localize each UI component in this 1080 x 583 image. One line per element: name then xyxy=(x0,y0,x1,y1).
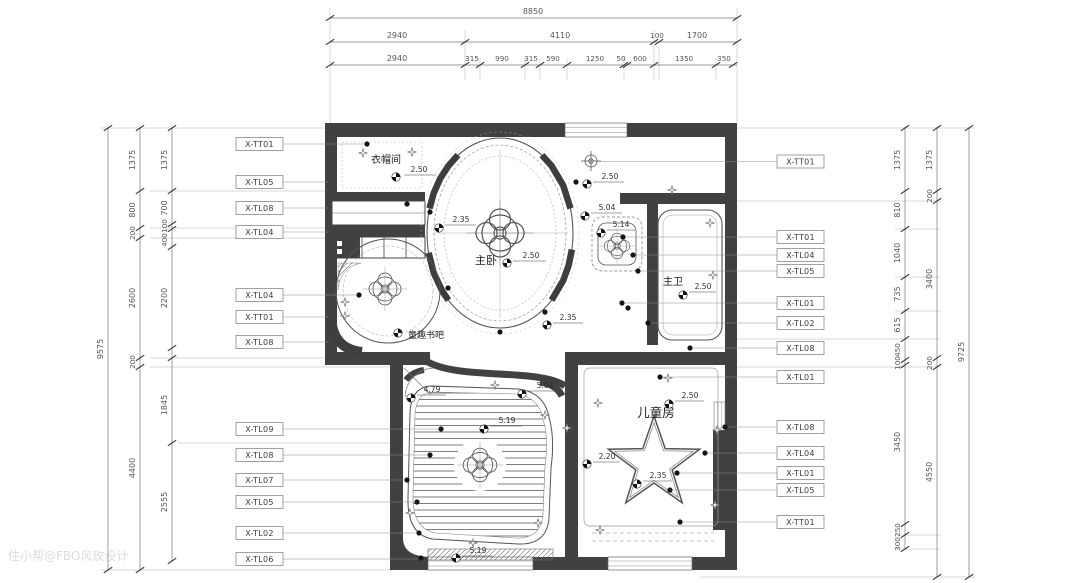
svg-text:X-TT01: X-TT01 xyxy=(245,140,274,149)
elev-niche-b: 5.14 xyxy=(597,220,635,237)
elev-master-south: 2.35 xyxy=(543,313,583,329)
svg-text:2.35: 2.35 xyxy=(560,313,577,322)
right-dimensions: 1375 810 1040 735 615 450 100 3450 250 3… xyxy=(893,125,973,580)
svg-text:X-TT01: X-TT01 xyxy=(786,233,815,242)
dim-top: 2940 xyxy=(387,54,407,63)
master-bedroom-ceiling xyxy=(421,132,579,334)
dim-right: 250 xyxy=(893,523,902,537)
callout: X-TL04 xyxy=(236,226,328,239)
svg-text:X-TL08: X-TL08 xyxy=(245,204,274,213)
dim-right: 1375 xyxy=(893,150,902,170)
svg-text:X-TL05: X-TL05 xyxy=(786,486,815,495)
svg-text:X-TL08: X-TL08 xyxy=(245,451,274,460)
elev-cloakroom: 2.50 xyxy=(392,165,436,181)
svg-text:X-TL05: X-TL05 xyxy=(245,178,274,187)
elev-master: 2.50 xyxy=(503,251,546,267)
south-bedroom-ceiling xyxy=(404,368,553,560)
svg-text:2.50: 2.50 xyxy=(523,251,540,260)
dim-left: 200 xyxy=(128,355,137,369)
callout: X-TT01 xyxy=(597,155,824,168)
dim-right: 735 xyxy=(893,286,902,301)
callout: X-TL08 xyxy=(722,421,824,434)
dim-top: 2940 xyxy=(387,31,407,40)
svg-text:5.14: 5.14 xyxy=(613,220,630,229)
dim-right: 100 xyxy=(893,356,902,370)
dim-top-total: 8850 xyxy=(523,7,543,16)
svg-text:X-TL04: X-TL04 xyxy=(245,291,274,300)
dim-left: 200 xyxy=(128,226,137,240)
svg-text:2.35: 2.35 xyxy=(650,471,667,480)
dim-top: 590 xyxy=(546,54,560,63)
window-bottom-2 xyxy=(608,557,692,570)
svg-text:X-TL05: X-TL05 xyxy=(245,498,274,507)
dim-top: 990 xyxy=(495,54,509,63)
svg-text:2.50: 2.50 xyxy=(695,282,712,291)
dim-top: 600 xyxy=(633,54,647,63)
top-dimensions: 8850 2940 4110 100 1700 2940 315 990 315… xyxy=(326,7,741,68)
curtain-box xyxy=(428,549,553,560)
svg-text:2.50: 2.50 xyxy=(602,172,619,181)
dim-top: 1250 xyxy=(586,54,605,63)
svg-text:5.19: 5.19 xyxy=(499,416,516,425)
callout: X-TT01 xyxy=(677,516,824,529)
svg-text:X-TL02: X-TL02 xyxy=(245,529,274,538)
dim-left: 1375 xyxy=(160,150,169,170)
ceiling-plan-page: 8850 2940 4110 100 1700 2940 315 990 315… xyxy=(0,0,1080,583)
elev-niche-a: 5.04 xyxy=(581,203,622,220)
svg-text:2.50: 2.50 xyxy=(411,165,428,174)
dim-right: 300 xyxy=(893,537,902,551)
elev-kids-north: 2.50 xyxy=(665,391,704,408)
dim-left: 4400 xyxy=(128,458,137,478)
svg-text:4.79: 4.79 xyxy=(424,385,441,394)
room-label-cloakroom: 衣帽间 xyxy=(371,153,401,166)
floor-plan-canvas: 8850 2940 4110 100 1700 2940 315 990 315… xyxy=(0,0,1080,583)
dim-left: 2555 xyxy=(160,492,169,512)
svg-text:X-TT01: X-TT01 xyxy=(786,158,815,167)
dim-right: 200 xyxy=(925,356,934,370)
dim-right: 615 xyxy=(893,317,902,332)
dim-top: 4110 xyxy=(550,31,570,40)
window-kids-right xyxy=(714,402,725,428)
dim-top: 50 xyxy=(616,54,626,63)
dim-right: 450 xyxy=(893,343,902,357)
elev-bar-marker xyxy=(394,329,402,337)
dim-right: 3400 xyxy=(925,269,934,289)
dim-left: 2200 xyxy=(160,288,169,308)
svg-text:2.35: 2.35 xyxy=(453,215,470,224)
callout: X-TT01 xyxy=(236,311,328,324)
star-ceiling-inner xyxy=(615,423,694,498)
svg-text:2.20: 2.20 xyxy=(599,452,616,461)
callout: X-TL05 xyxy=(236,176,328,189)
svg-text:X-TL04: X-TL04 xyxy=(245,228,274,237)
dim-right: 1375 xyxy=(925,150,934,170)
callout: X-TL01 xyxy=(657,371,824,384)
callout: X-TL09 xyxy=(236,423,444,436)
lamp-icon xyxy=(581,151,601,171)
callout: X-TL07 xyxy=(236,474,410,487)
svg-text:5.04: 5.04 xyxy=(537,381,554,390)
svg-text:X-TL02: X-TL02 xyxy=(786,319,815,328)
dim-top: 1700 xyxy=(687,31,707,40)
callout: X-TL05 xyxy=(667,484,824,497)
svg-text:X-TL08: X-TL08 xyxy=(245,338,274,347)
ceiling-medallion-bar xyxy=(363,267,407,311)
dim-right: 200 xyxy=(925,189,934,203)
svg-text:X-TL08: X-TL08 xyxy=(786,423,815,432)
dim-left: 2600 xyxy=(128,288,137,308)
elev-master-ne: 2.50 xyxy=(583,172,624,188)
dim-right: 3450 xyxy=(893,432,902,452)
callout: X-TL08 xyxy=(236,336,328,349)
callout: X-TL01 xyxy=(674,467,824,480)
svg-text:5.04: 5.04 xyxy=(599,203,616,212)
watermark: 住小帮@FBO风玫设计 xyxy=(8,548,128,563)
svg-text:X-TL06: X-TL06 xyxy=(245,555,274,564)
dim-left: 400 xyxy=(160,233,169,247)
dim-left: 800 xyxy=(128,202,137,217)
svg-text:X-TL07: X-TL07 xyxy=(245,476,274,485)
dim-top: 350 xyxy=(717,54,731,63)
dim-top: 100 xyxy=(650,31,664,40)
callout: X-TL08 xyxy=(236,202,328,215)
dim-left: 1375 xyxy=(128,150,137,170)
svg-text:X-TL05: X-TL05 xyxy=(786,267,815,276)
svg-text:X-TL01: X-TL01 xyxy=(786,299,815,308)
room-label-bar: 童趣书吧 xyxy=(408,329,444,341)
dim-right: 810 xyxy=(893,202,902,217)
svg-text:X-TL08: X-TL08 xyxy=(786,344,815,353)
elev-kids-west: 2.20 xyxy=(583,452,620,468)
dim-right-total: 9725 xyxy=(957,342,966,362)
elev-kids-center: 2.35 xyxy=(633,471,672,488)
dim-right: 4550 xyxy=(925,462,934,482)
dim-left: 100 xyxy=(160,219,169,233)
svg-text:5.19: 5.19 xyxy=(470,546,487,555)
svg-text:X-TL01: X-TL01 xyxy=(786,373,815,382)
dim-top: 315 xyxy=(524,54,538,63)
svg-text:X-TL09: X-TL09 xyxy=(245,425,274,434)
window-top xyxy=(565,123,627,137)
svg-text:X-TT01: X-TT01 xyxy=(245,313,274,322)
callout: X-TT01 xyxy=(236,138,370,151)
room-label-master: 主卧 xyxy=(475,254,497,267)
dim-left: 1845 xyxy=(160,395,169,415)
dim-right: 1040 xyxy=(893,243,902,263)
room-label-bath: 主卫 xyxy=(663,276,683,288)
dim-top: 315 xyxy=(465,54,479,63)
svg-text:X-TL04: X-TL04 xyxy=(786,251,815,260)
dim-left-total: 9575 xyxy=(96,339,105,359)
svg-text:X-TL04: X-TL04 xyxy=(786,449,815,458)
left-dimensions: 9575 1375 800 200 2600 200 4400 1375 700… xyxy=(96,125,176,573)
dim-left: 700 xyxy=(160,200,169,215)
svg-text:X-TL01: X-TL01 xyxy=(786,469,815,478)
callout: X-TL08 xyxy=(236,449,433,462)
elev-oval-west: 2.35 xyxy=(435,215,476,232)
dim-top: 1350 xyxy=(675,54,694,63)
svg-text:X-TT01: X-TT01 xyxy=(786,518,815,527)
svg-text:2.50: 2.50 xyxy=(682,391,699,400)
